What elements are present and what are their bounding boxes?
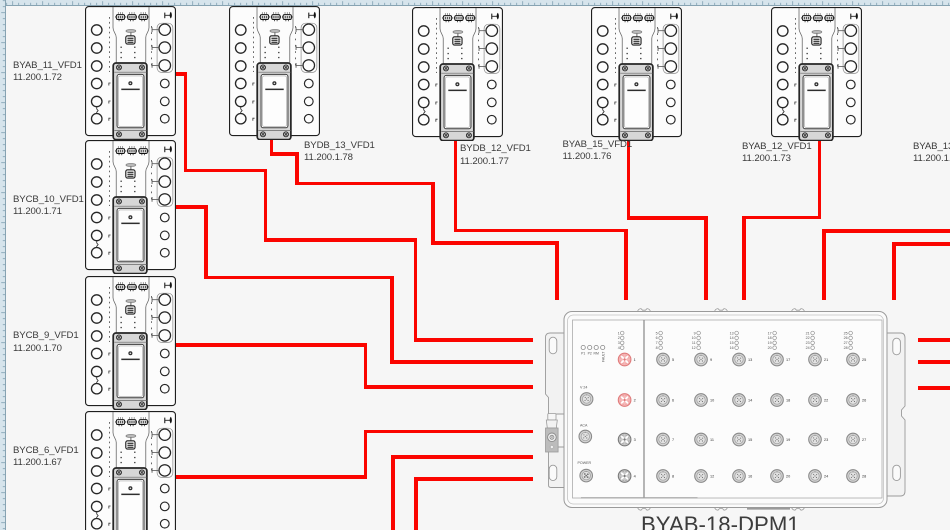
svg-text:11: 11 [710,438,714,442]
svg-text:8: 8 [656,346,658,350]
svg-text:26: 26 [844,336,848,340]
svg-text:POWER: POWER [578,461,592,465]
svg-text:12: 12 [692,346,696,350]
svg-text:15: 15 [748,438,752,442]
svg-text:2: 2 [618,336,620,340]
svg-text:23: 23 [824,438,828,442]
svg-text:28: 28 [862,474,866,478]
svg-text:25: 25 [844,331,848,335]
svg-text:P1: P1 [581,352,585,356]
svg-text:1: 1 [634,358,636,362]
svg-text:26: 26 [862,398,866,402]
svg-text:10: 10 [692,336,696,340]
svg-text:21: 21 [806,331,810,335]
svg-text:FAULT: FAULT [601,352,605,362]
svg-text:22: 22 [806,336,810,340]
svg-text:15: 15 [730,341,734,345]
svg-text:20: 20 [786,474,790,478]
svg-text:5: 5 [672,358,674,362]
svg-text:17: 17 [768,331,772,335]
svg-text:18: 18 [786,398,790,402]
svg-text:4: 4 [618,346,620,350]
svg-text:RM: RM [594,352,599,356]
svg-text:12: 12 [710,474,714,478]
svg-text:14: 14 [748,398,752,402]
svg-text:18: 18 [768,336,772,340]
svg-text:19: 19 [786,438,790,442]
svg-text:ACA: ACA [580,424,588,428]
svg-text:5: 5 [656,331,658,335]
svg-text:21: 21 [824,358,828,362]
svg-text:25: 25 [862,358,866,362]
svg-text:19: 19 [768,341,772,345]
svg-text:6: 6 [656,336,658,340]
svg-text:24: 24 [824,474,828,478]
svg-text:9: 9 [710,358,712,362]
svg-text:7: 7 [656,341,658,345]
svg-text:28: 28 [844,346,848,350]
svg-text:27: 27 [844,341,848,345]
svg-text:11: 11 [692,341,696,345]
svg-text:24: 24 [806,346,810,350]
svg-text:9: 9 [694,331,696,335]
svg-text:1: 1 [618,331,620,335]
svg-text:22: 22 [824,398,828,402]
svg-text:27: 27 [862,438,866,442]
svg-text:10: 10 [710,398,714,402]
svg-text:7: 7 [672,438,674,442]
svg-text:4: 4 [634,474,636,478]
svg-text:3: 3 [634,438,636,442]
svg-text:P2: P2 [588,352,592,356]
svg-text:2: 2 [634,398,636,402]
svg-text:6: 6 [672,398,674,402]
svg-text:20: 20 [768,346,772,350]
svg-text:V 24: V 24 [580,386,587,390]
svg-text:17: 17 [786,358,790,362]
svg-text:13: 13 [730,331,734,335]
svg-text:13: 13 [748,358,752,362]
svg-text:8: 8 [672,474,674,478]
svg-text:14: 14 [730,336,734,340]
svg-text:16: 16 [730,346,734,350]
svg-text:3: 3 [618,341,620,345]
svg-text:16: 16 [748,474,752,478]
svg-text:23: 23 [806,341,810,345]
